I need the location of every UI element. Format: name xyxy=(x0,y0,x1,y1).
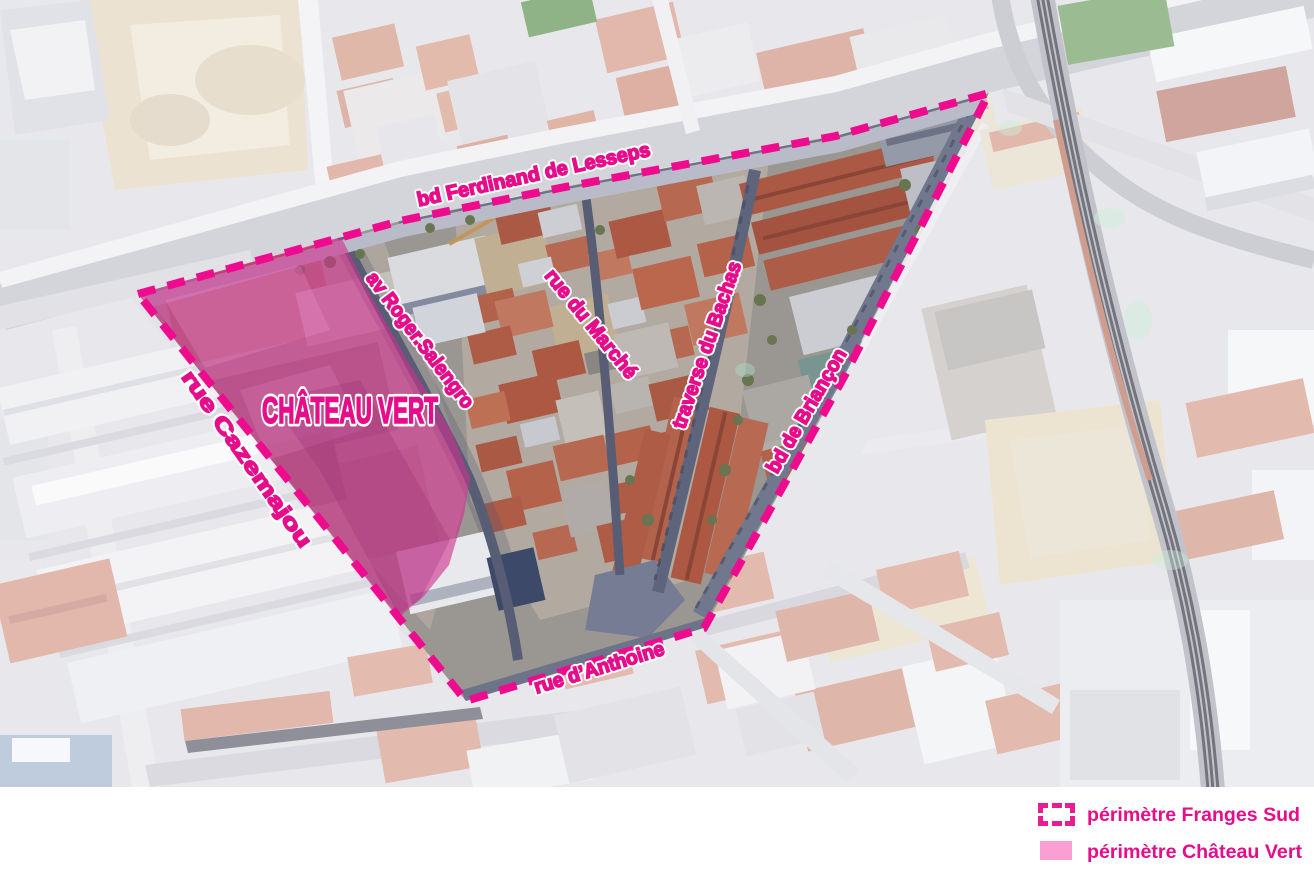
svg-text:périmètre Château Vert: périmètre Château Vert xyxy=(1087,842,1303,863)
svg-text:CHÂTEAU VERT: CHÂTEAU VERT xyxy=(262,389,438,431)
svg-text:périmètre Franges Sud: périmètre Franges Sud xyxy=(1087,805,1300,826)
